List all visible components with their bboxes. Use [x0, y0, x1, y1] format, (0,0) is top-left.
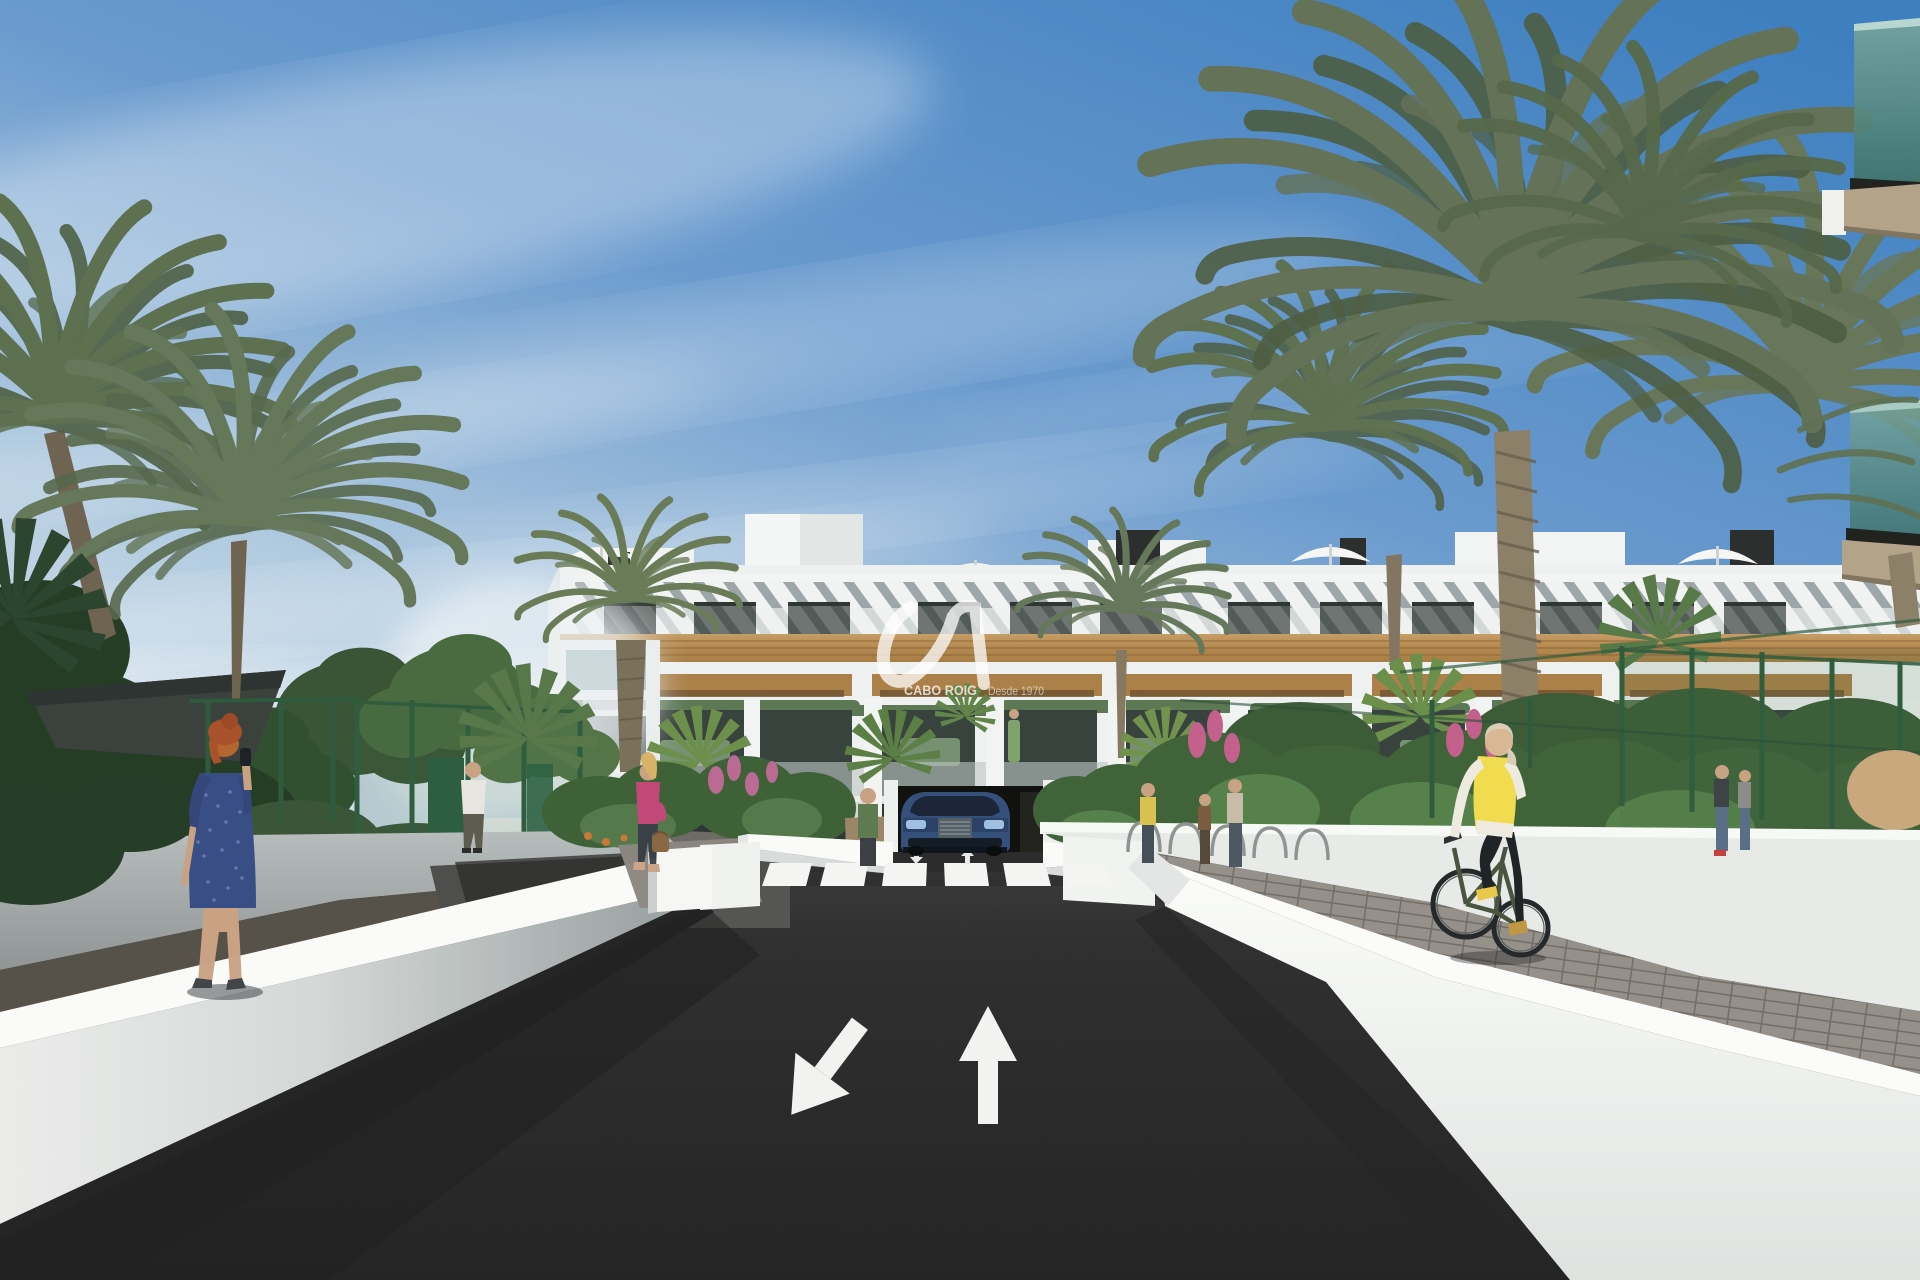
- svg-text:CABO ROIG: CABO ROIG: [904, 682, 977, 698]
- svg-text:Desde 1970: Desde 1970: [988, 684, 1044, 698]
